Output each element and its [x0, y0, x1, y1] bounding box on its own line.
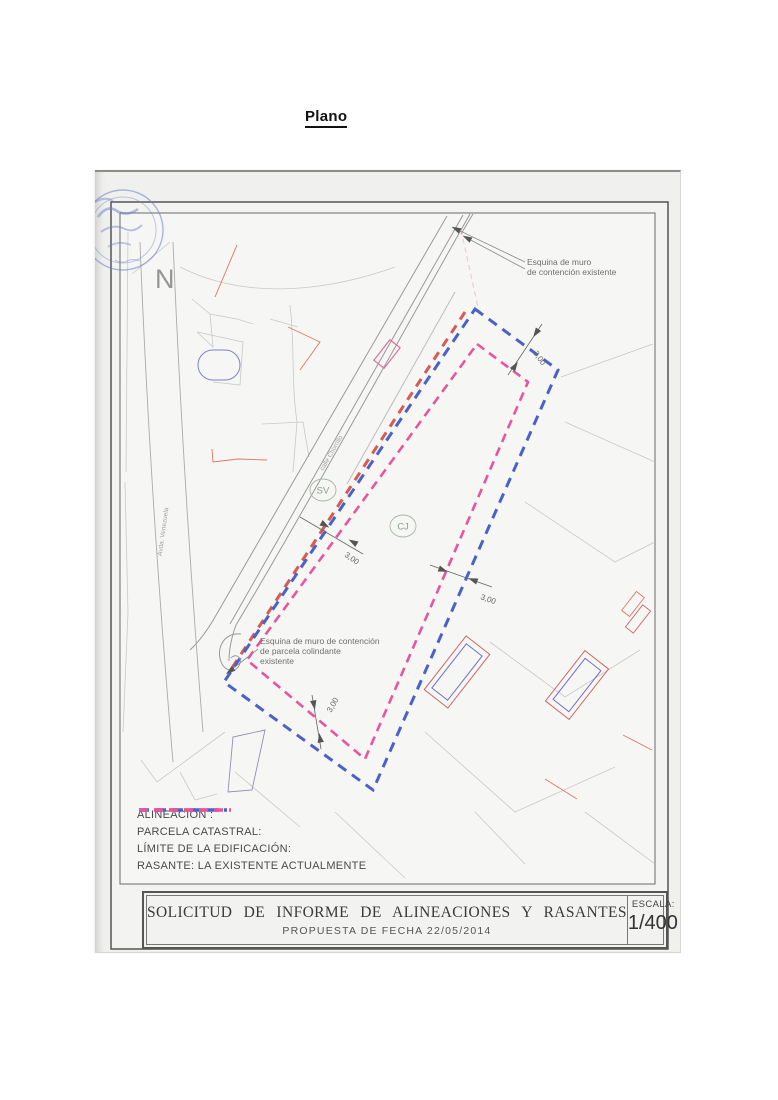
north-indicator: N: [155, 264, 175, 294]
svg-text:de parcela colindante: de parcela colindante: [260, 646, 341, 656]
drawing-subtitle: PROPUESTA DE FECHA 22/05/2014: [282, 925, 491, 937]
legend-item-rasante: RASANTE: LA EXISTENTE ACTUALMENTE: [137, 857, 467, 874]
legend-item-parcela: PARCELA CATASTRAL:: [137, 823, 467, 840]
svg-text:Esquina de muro: Esquina de muro: [527, 257, 592, 267]
legend-label: LÍMITE DE LA EDIFICACIÓN:: [137, 843, 291, 855]
page-title: Plano: [305, 108, 347, 128]
svg-text:CJ: CJ: [397, 522, 409, 533]
inner-frame: [120, 213, 655, 884]
svg-text:Esquina de muro de contención: Esquina de muro de contención: [260, 636, 380, 646]
svg-text:de contención existente: de contención existente: [527, 267, 617, 277]
svg-text:SV: SV: [317, 486, 330, 497]
legend-sample-line: [137, 806, 233, 814]
legend-label: RASANTE: LA EXISTENTE ACTUALMENTE: [137, 860, 366, 872]
title-block: SOLICITUD DE INFORME DE ALINEACIONES Y R…: [142, 891, 668, 949]
legend-item-limite: LÍMITE DE LA EDIFICACIÓN:: [137, 840, 467, 857]
svg-text:existente: existente: [260, 656, 294, 666]
drawing-title: SOLICITUD DE INFORME DE ALINEACIONES Y R…: [147, 904, 627, 922]
title-block-inner: SOLICITUD DE INFORME DE ALINEACIONES Y R…: [146, 895, 664, 945]
scale-value: 1/400: [628, 912, 678, 935]
legend: ALINEACIÓN : PARCELA CATASTRAL: LÍMITE D…: [137, 806, 467, 874]
scale-label: ESCALA:: [628, 896, 678, 910]
legend-label: PARCELA CATASTRAL:: [137, 826, 262, 838]
scanned-plan-sheet: 3,00 3,00 3,00 3,00: [95, 170, 681, 953]
scale-box: ESCALA: 1/400: [627, 896, 678, 944]
